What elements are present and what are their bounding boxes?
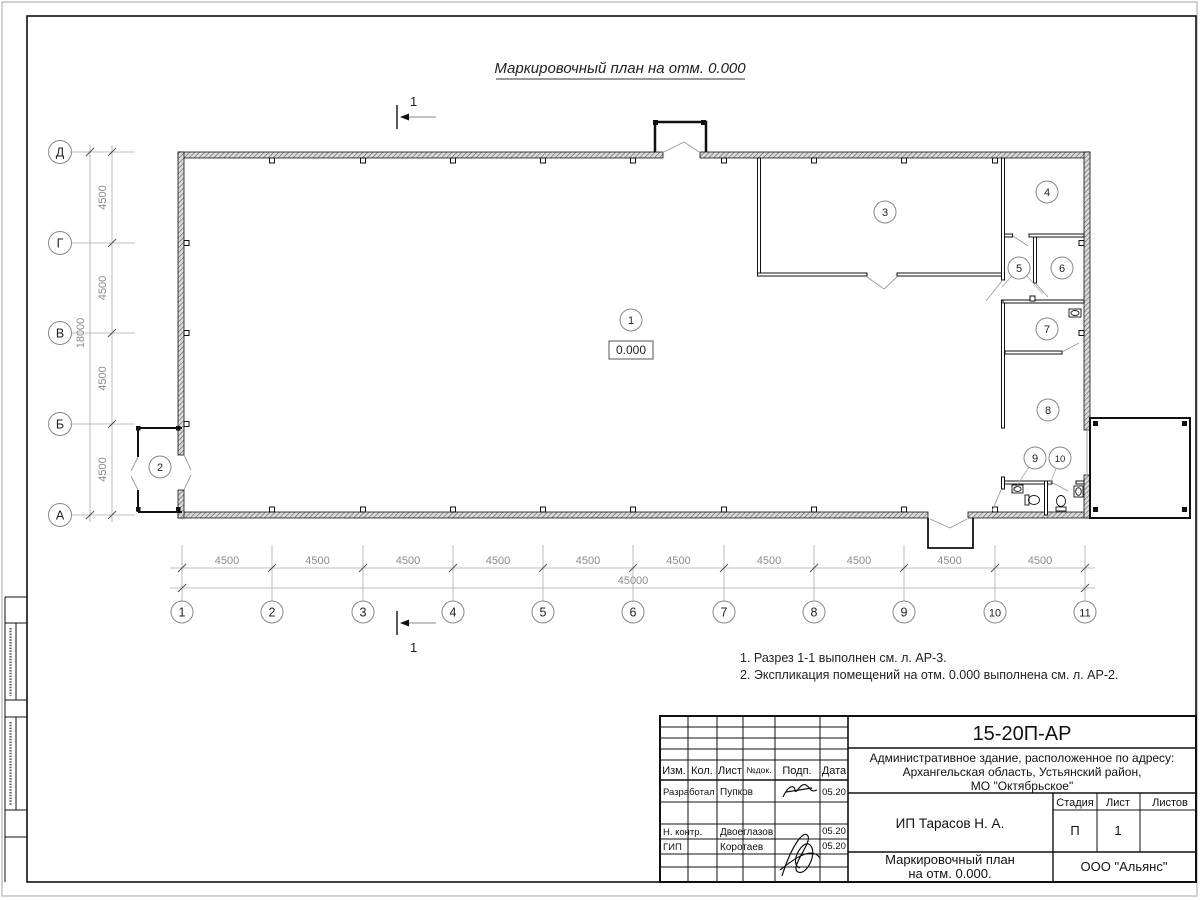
toilet-icon [1056,507,1066,511]
dim-label: 4500 [576,555,600,567]
col-axis-label: 5 [540,606,547,620]
drawing-name-line: Маркировочный план [885,852,1015,867]
room-number: 10 [1055,454,1066,465]
bottom-axis-extension-lines [170,545,1095,601]
project-line: МО "Октябрьское" [971,779,1073,793]
col-axis-bubbles: 1 2 3 4 5 6 7 8 9 10 11 [171,601,1096,623]
sig-date: 05.20 [822,787,846,798]
note-line: 2. Экспликация помещений на отм. 0.000 в… [740,668,1118,682]
dim-label: 4500 [97,457,109,481]
client-name: ИП Тарасов Н. А. [896,816,1005,831]
dim-label: 4500 [666,555,690,567]
col-axis-label: 2 [269,606,276,620]
col-axis-label: 3 [360,606,367,620]
col-axis-label: 11 [1079,608,1090,620]
room-number: 2 [157,462,163,474]
dim-label: 4500 [97,185,109,209]
col-axis-label: 4 [450,606,457,620]
dim-label: 4500 [486,555,510,567]
door-swing-lines [867,236,1079,511]
page-title: Маркировочный план на отм. 0.000 [494,60,746,77]
exterior-walls [178,152,1090,518]
room-bubbles: 1 2 3 4 5 6 7 8 9 10 [149,181,1073,478]
dim-total-label: 45000 [618,575,649,587]
tb-col-header: Дата [822,765,847,777]
room-number: 4 [1044,187,1050,199]
sig-name: Коротаев [720,842,763,853]
dim-label: 4500 [757,555,781,567]
svg-text:0.000: 0.000 [616,343,646,357]
floor-plan-drawing: Маркировочный план на отм. 0.000 [0,0,1200,900]
section-mark-bottom: 1 [397,611,436,655]
company-name: ООО "Альянс" [1081,859,1168,874]
wall-pilasters [184,158,1084,512]
dim-label: 4500 [97,276,109,300]
col-axis-label: 8 [811,606,818,620]
dim-label: 4500 [396,555,420,567]
sheet-number: 1 [1114,823,1121,838]
dim-label: 4500 [305,555,329,567]
col-axis-label: 10 [989,608,1001,620]
room-number: 5 [1016,263,1022,275]
svg-text:1: 1 [410,94,417,109]
room-number: 8 [1045,405,1051,417]
project-line: Архангельская область, Устьянский район, [903,765,1142,779]
tb-col-header: Лист [718,765,742,777]
row-axis-label: Г [57,237,64,251]
dim-label: 4500 [937,555,961,567]
tb-col-header: Изм. [662,765,686,777]
stage-value: П [1070,823,1079,838]
drawing-name-line: на отм. 0.000. [908,866,991,881]
right-porch [1087,418,1190,518]
left-stamp-strip [5,597,27,882]
svg-text:1: 1 [410,640,417,655]
dim-label: 4500 [1028,555,1052,567]
dim-total-label: 18000 [75,318,87,349]
elevation-mark: 0.000 [609,341,653,359]
top-vestibule [653,120,706,152]
stage-col-header: Стадия [1056,797,1094,809]
sig-date: 05.20 [822,826,846,837]
col-axis-label: 9 [901,606,908,620]
tb-col-header: Подп. [782,765,811,777]
col-axis-label: 6 [630,606,637,620]
room-number: 9 [1032,453,1038,465]
room-number: 7 [1044,324,1050,336]
row-axis-label: Б [56,418,64,432]
sig-role: Н. контр. [663,827,702,838]
sig-role: ГИП [663,842,682,853]
stage-col-header: Лист [1106,797,1130,809]
row-axis-label: А [56,509,65,523]
row-axis-label: В [56,327,64,341]
sig-name: Пупков [720,787,753,798]
drawing-sheet: Маркировочный план на отм. 0.000 [0,0,1200,900]
doc-number: 15-20П-АР [973,723,1072,745]
tb-col-header: №док. [747,765,772,775]
note-line: 1. Разрез 1-1 выполнен см. л. АР-3. [740,651,947,665]
section-mark-top: 1 [397,94,436,129]
notes: 1. Разрез 1-1 выполнен см. л. АР-3. 2. Э… [740,651,1118,682]
stage-col-header: Листов [1152,797,1188,809]
sig-date: 05.20 [822,841,846,852]
row-axis-label: Д [56,146,65,160]
title-block: 15-20П-АР Административное здание, распо… [660,716,1196,882]
tb-col-header: Кол. [691,765,713,777]
col-axis-label: 7 [721,606,728,620]
sig-name: Двоеглазов [720,827,773,838]
dim-label: 4500 [847,555,871,567]
project-line: Административное здание, расположенное п… [870,751,1175,765]
room-number: 6 [1059,263,1065,275]
room-number: 3 [882,207,888,219]
dim-label: 4500 [215,555,239,567]
row-axis-bubbles: Д Г В Б А [49,141,72,527]
bottom-porch [928,518,973,548]
col-axis-label: 1 [179,606,186,620]
room-number: 1 [628,315,634,327]
sig-role: Разработал [663,787,715,798]
dim-label: 4500 [97,366,109,390]
